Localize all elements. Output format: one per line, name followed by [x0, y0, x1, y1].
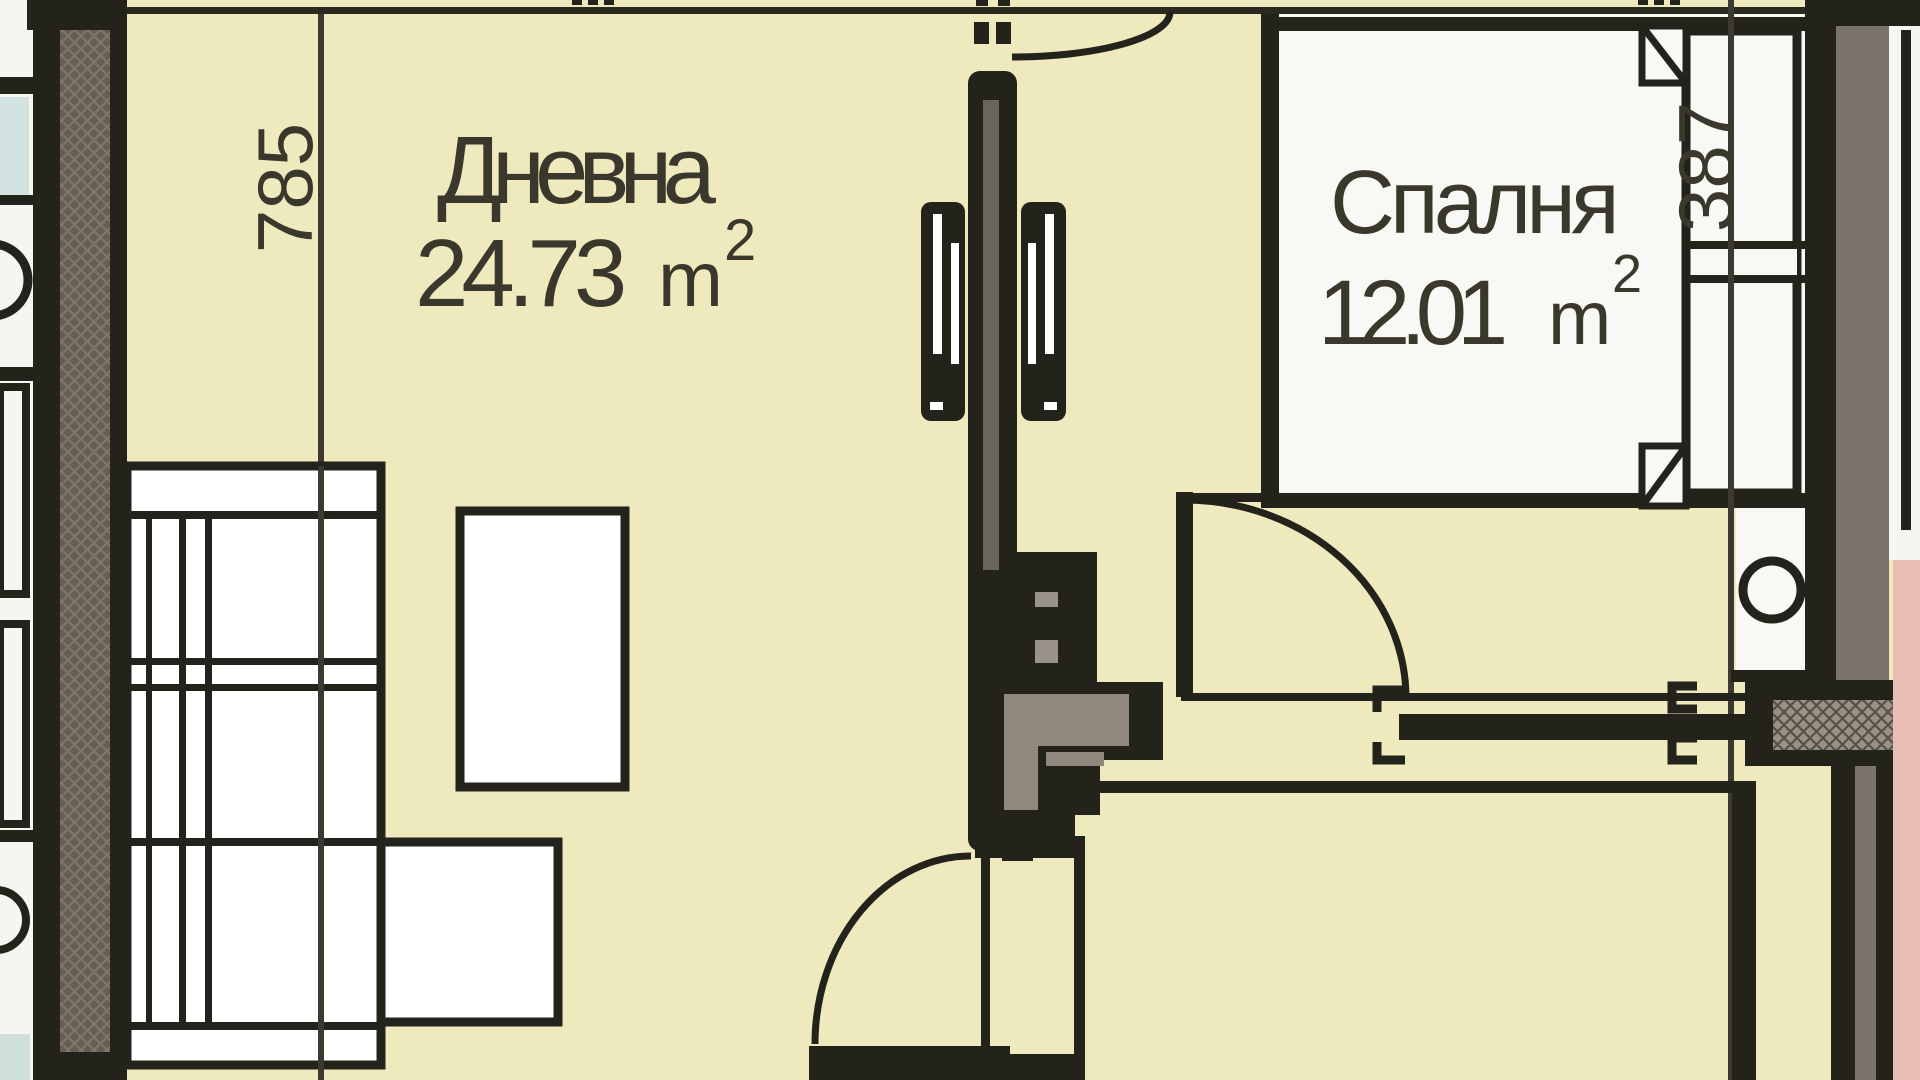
svg-text:12.01: 12.01 — [1318, 262, 1504, 364]
svg-text:m: m — [658, 235, 723, 323]
svg-text:785: 785 — [241, 123, 329, 253]
svg-text:2: 2 — [1612, 244, 1642, 304]
svg-text:24.73: 24.73 — [415, 220, 624, 327]
svg-text:Дневна: Дневна — [437, 117, 716, 224]
svg-text:2: 2 — [724, 208, 756, 273]
svg-text:m: m — [1548, 276, 1611, 361]
svg-text:Спалня: Спалня — [1330, 153, 1615, 253]
svg-text:387: 387 — [1662, 102, 1750, 232]
